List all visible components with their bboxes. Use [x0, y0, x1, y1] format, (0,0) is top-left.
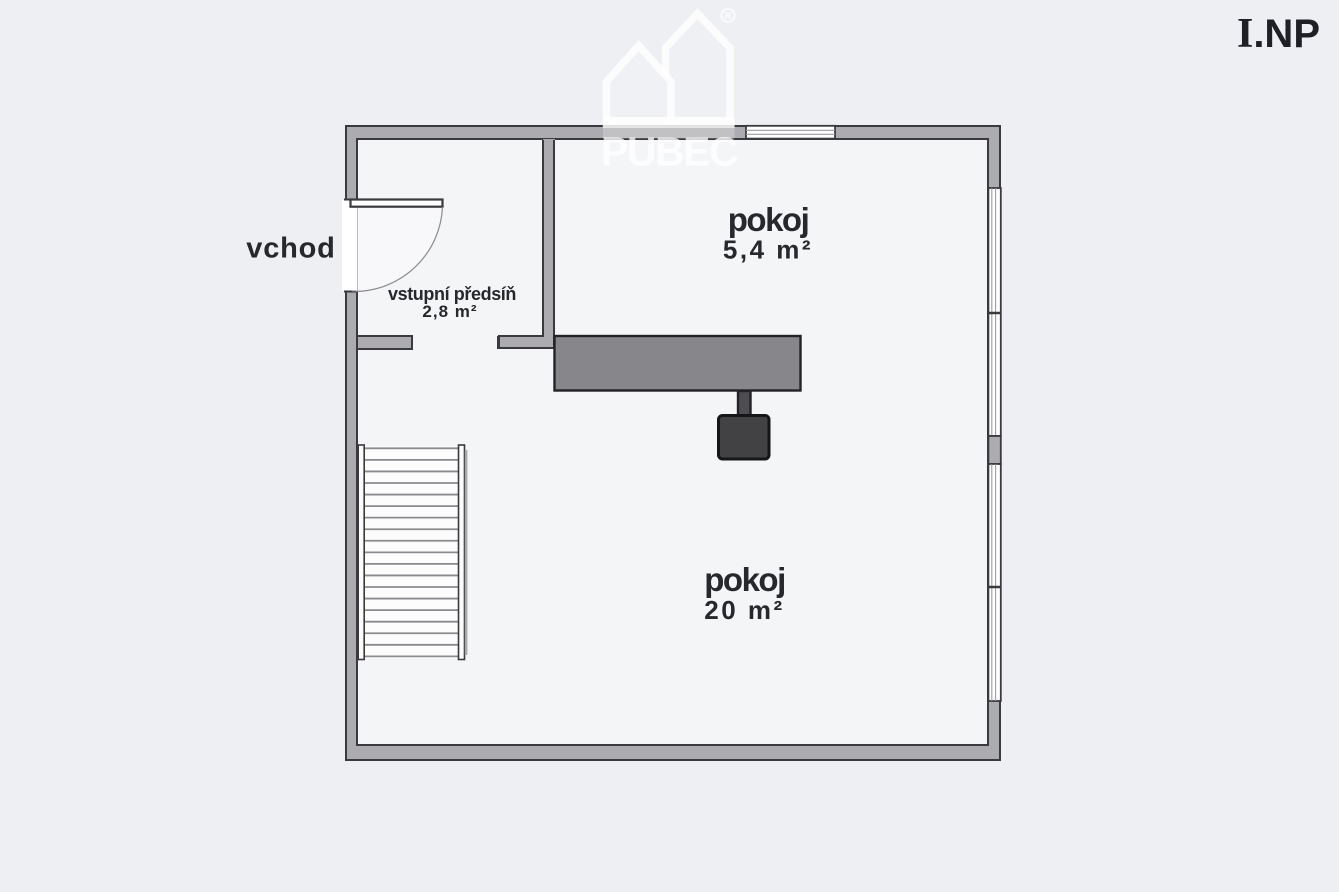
- svg-text:5,4 m²: 5,4 m²: [723, 235, 813, 265]
- svg-text:R: R: [725, 11, 732, 21]
- svg-text:vstupní předsíň: vstupní předsíň: [388, 284, 516, 304]
- svg-text:I.NP: I.NP: [1237, 11, 1320, 57]
- svg-text:20 m²: 20 m²: [704, 595, 784, 625]
- svg-text:pokoj: pokoj: [704, 561, 785, 598]
- svg-text:2,8 m²: 2,8 m²: [422, 302, 477, 321]
- svg-text:PUBEC: PUBEC: [601, 129, 738, 175]
- svg-text:pokoj: pokoj: [728, 201, 809, 238]
- svg-text:vchod: vchod: [246, 233, 335, 265]
